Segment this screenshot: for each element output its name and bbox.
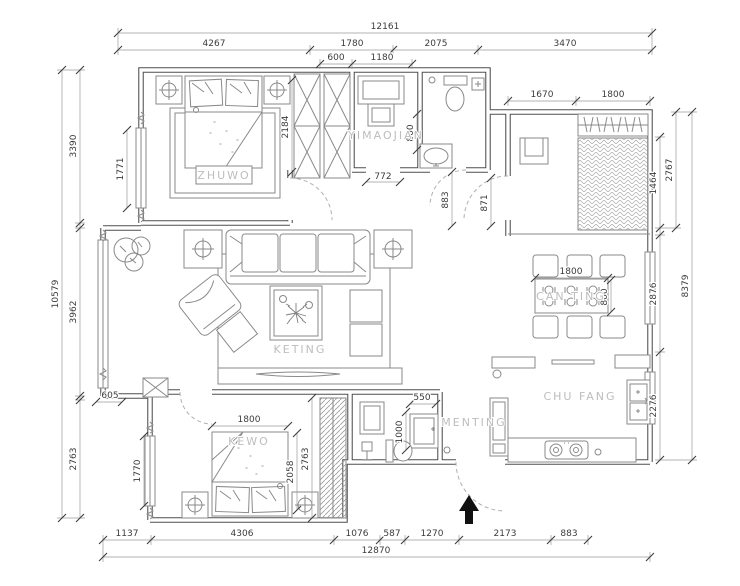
dim-dining-1800: 1800 (560, 267, 583, 277)
dim-top-seg3: 3470 (554, 39, 577, 49)
yimaojian-furniture (358, 76, 404, 126)
room-label-chufang: CHU FANG (543, 390, 616, 403)
dim-2184: 2184 (281, 115, 291, 138)
dim-window-1771: 1771 (116, 158, 126, 181)
dim-left-seg2: 2763 (69, 448, 79, 471)
entrance-arrow-icon (459, 495, 479, 524)
room-label-kewo: KEWO (228, 435, 270, 448)
dim-right-outer0: 2767 (665, 159, 675, 182)
room-label-yimaojian: YIMAOJIAN (347, 129, 424, 142)
ottoman (350, 290, 382, 322)
dim-right-outer1: 8379 (681, 274, 691, 297)
dim-step-605: 605 (101, 391, 118, 401)
room-label-zhuwo: ZHUWO (197, 169, 250, 182)
sink-double-icon (627, 380, 650, 424)
bathroom-top (420, 76, 484, 168)
column-x-box (143, 378, 168, 397)
dim-tr-1670: 1670 (531, 90, 554, 100)
dim-871: 871 (480, 194, 490, 211)
dim-top-overall: 12161 (371, 22, 400, 32)
washbasin-icon (420, 144, 452, 168)
floor-plan: 12161 4267 1780 2075 3470 1137 4306 1076… (0, 0, 740, 586)
dim-left-seg1: 3962 (69, 301, 79, 324)
entrance-door-arc (456, 462, 505, 511)
tv-console (218, 368, 402, 384)
dim-kewo-2763: 2763 (301, 448, 311, 471)
drain-icon (429, 77, 435, 83)
dim-right-inner0: 1464 (649, 171, 659, 194)
dim-1180: 1180 (371, 53, 394, 63)
dim-left-overall: 10579 (51, 279, 61, 308)
drain-icon (444, 447, 450, 453)
dim-bot-seg3: 587 (383, 529, 400, 539)
chair (567, 316, 592, 338)
dim-kewo-2058: 2058 (286, 460, 296, 483)
dim-bot-seg2: 1076 (346, 529, 369, 539)
shower-icon (472, 78, 484, 90)
dim-right-inner2: 2276 (649, 394, 659, 417)
mop-sink-icon (520, 138, 548, 164)
washer-cabinet (360, 402, 384, 434)
dim-kewo-1800: 1800 (238, 415, 261, 425)
dim-tr-1800: 1800 (602, 90, 625, 100)
dim-600: 600 (327, 53, 344, 63)
dim-550: 550 (413, 393, 430, 403)
chair (533, 255, 558, 277)
chair (600, 255, 625, 277)
dim-bot-seg6: 883 (560, 529, 577, 539)
chair (600, 316, 625, 338)
kewo-furniture (182, 398, 346, 518)
kewo-door-arc (180, 392, 212, 424)
room-label-canting: CAN TING (536, 290, 606, 303)
dim-bot-overall: 12870 (362, 546, 391, 556)
ottoman (350, 324, 382, 356)
coffee-table (270, 286, 322, 340)
stove-icon (545, 441, 588, 459)
shelf (552, 360, 594, 364)
chufang-furniture (492, 355, 650, 462)
counter (615, 355, 650, 368)
chair (533, 316, 558, 338)
dim-bot-seg4: 1270 (421, 529, 444, 539)
dim-right-inner1: 2876 (649, 282, 659, 305)
bathroom-bottom (360, 402, 450, 462)
window-kewo (145, 422, 155, 519)
dim-bot-seg0: 1137 (116, 529, 139, 539)
window-zhuwo (136, 112, 146, 222)
wardrobe-x (294, 74, 350, 178)
dim-772: 772 (374, 172, 391, 182)
drain-icon (493, 370, 501, 378)
dim-top-seg0: 4267 (203, 39, 226, 49)
dim-883: 883 (441, 191, 451, 208)
dim-1000: 1000 (395, 420, 405, 443)
room-label-menting: MENTING (441, 416, 506, 429)
keting-furniture (114, 230, 412, 397)
pedestal-icon (362, 442, 372, 460)
floor-plan-canvas: 12161 4267 1780 2075 3470 1137 4306 1076… (0, 0, 740, 586)
plant-icon (114, 237, 150, 271)
window-keting (98, 230, 108, 388)
dim-bot-seg1: 4306 (231, 529, 254, 539)
sliding-wardrobe (320, 398, 346, 518)
sofa (226, 230, 370, 284)
room-label-keting: KETING (274, 343, 327, 356)
dim-top-seg1: 1780 (341, 39, 364, 49)
dim-top-seg2: 2075 (425, 39, 448, 49)
toilet-icon (444, 76, 467, 111)
counter (492, 357, 535, 368)
dim-window-1770: 1770 (133, 459, 143, 482)
zhuwo-door-arc (290, 178, 332, 220)
bed-double (185, 76, 262, 168)
washbasin-icon (410, 414, 438, 448)
balcony (520, 114, 648, 230)
dim-bot-seg5: 2173 (494, 529, 517, 539)
drying-area (578, 138, 648, 230)
dim-left-seg0: 3390 (69, 134, 79, 157)
